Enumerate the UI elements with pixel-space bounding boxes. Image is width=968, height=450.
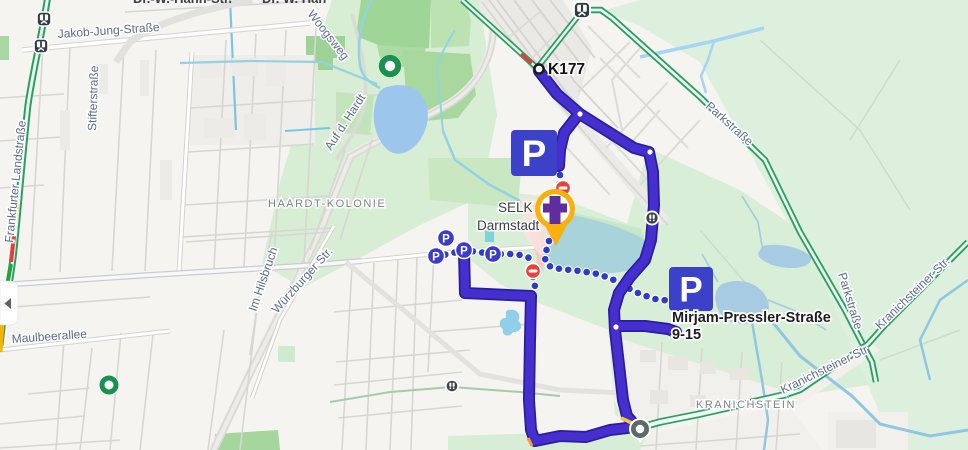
svg-text:P: P xyxy=(460,246,468,258)
svg-text:P: P xyxy=(442,234,450,246)
svg-text:Mirjam-Pressler-Straße: Mirjam-Pressler-Straße xyxy=(672,310,831,326)
svg-text:KRANICHSTEIN: KRANICHSTEIN xyxy=(696,399,796,411)
svg-text:Dr.-W.-Hahn-Str.: Dr.-W.-Hahn-Str. xyxy=(133,0,232,6)
svg-text:P: P xyxy=(679,271,702,310)
svg-text:P: P xyxy=(522,133,547,174)
svg-text:Darmstadt: Darmstadt xyxy=(477,218,540,233)
svg-text:9-15: 9-15 xyxy=(672,327,701,343)
svg-text:SELK -: SELK - xyxy=(498,200,541,215)
svg-text:P: P xyxy=(432,252,440,264)
svg-text:K177: K177 xyxy=(548,61,585,78)
svg-text:Stifterstraße: Stifterstraße xyxy=(85,65,101,131)
svg-text:HAARDT-KOLONIE: HAARDT-KOLONIE xyxy=(268,198,386,210)
svg-text:P: P xyxy=(489,250,497,262)
svg-text:Dr. W. Han: Dr. W. Han xyxy=(262,0,326,6)
